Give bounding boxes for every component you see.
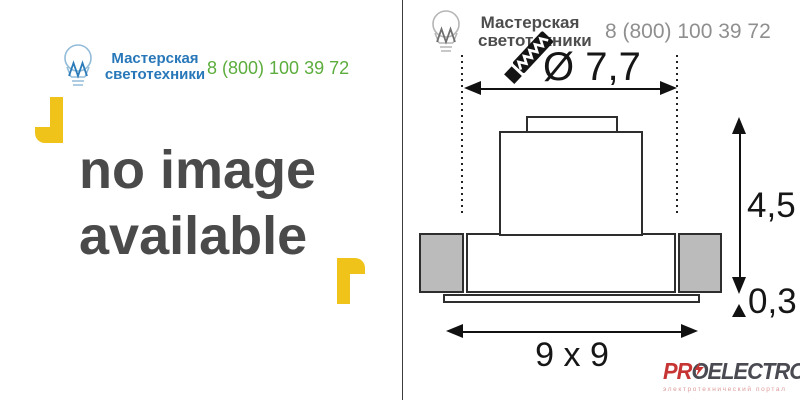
logo-part-o: O bbox=[691, 358, 707, 385]
height-dimension-arrow bbox=[732, 117, 747, 294]
no-image-text-line2: available bbox=[79, 203, 316, 269]
brand-name-line1: Мастерская bbox=[102, 51, 208, 67]
brand-name: Мастерская светотехники bbox=[102, 51, 208, 83]
corner-bracket-icon bbox=[337, 258, 365, 304]
arrow-right-icon bbox=[660, 81, 677, 95]
proelectro-subtitle: электротехнический портал bbox=[663, 386, 800, 393]
extension-line-left bbox=[461, 55, 463, 213]
brand-logo-watermark bbox=[426, 8, 466, 65]
lightbulb-icon bbox=[58, 42, 98, 94]
lamp-body bbox=[499, 131, 643, 236]
no-image-text-line1: no image bbox=[79, 137, 316, 203]
dimension-line bbox=[458, 331, 686, 333]
no-image-text: no image available bbox=[79, 137, 316, 269]
logo-part-pr: PR bbox=[663, 358, 691, 384]
diameter-dimension-arrow bbox=[464, 81, 677, 96]
brand-phone: 8 (800) 100 39 72 bbox=[207, 58, 349, 79]
base-dimension-label: 9 x 9 bbox=[446, 336, 698, 375]
dimension-diagram-panel: Мастерская светотехники 8 (800) 100 39 7… bbox=[402, 0, 800, 400]
proelectro-wordmark: PROELECTRORU bbox=[663, 358, 800, 385]
product-gallery: Мастерская светотехники 8 (800) 100 39 7… bbox=[0, 0, 800, 400]
dimension-line bbox=[739, 129, 741, 282]
plate-dimension-arrow-up bbox=[732, 304, 746, 317]
trim-left-section bbox=[419, 233, 464, 293]
proelectro-logo: PROELECTRORU электротехнический портал bbox=[663, 358, 800, 393]
no-image-panel: Мастерская светотехники 8 (800) 100 39 7… bbox=[0, 0, 402, 400]
brand-name-line2: светотехники bbox=[102, 67, 208, 83]
extension-line-right bbox=[676, 55, 678, 213]
logo-part-electro: ELECTRO bbox=[708, 358, 800, 384]
corner-bracket-icon bbox=[35, 97, 63, 143]
brand-logo bbox=[58, 42, 98, 99]
trim-center bbox=[466, 233, 676, 293]
arrow-down-icon bbox=[732, 277, 746, 294]
trim-right-section bbox=[678, 233, 722, 293]
plate-dimension-label: 0,3 bbox=[748, 282, 797, 322]
cover-plate bbox=[443, 294, 700, 303]
height-dimension-label: 4,5 bbox=[747, 186, 796, 226]
lightbulb-icon bbox=[426, 8, 466, 60]
dimension-line bbox=[476, 88, 665, 90]
lightning-bolt-icon bbox=[693, 362, 704, 376]
brand-phone-watermark: 8 (800) 100 39 72 bbox=[605, 20, 771, 44]
